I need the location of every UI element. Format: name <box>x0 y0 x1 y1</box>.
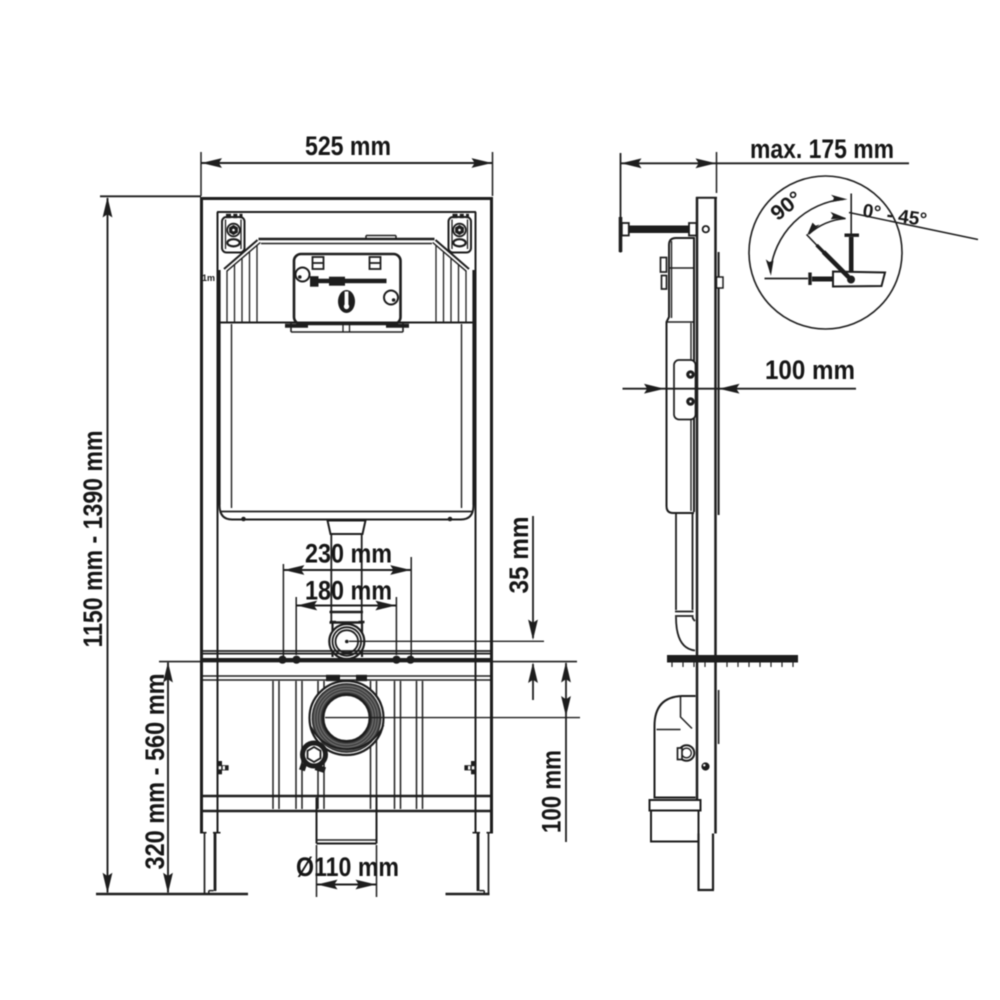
svg-text:180 mm: 180 mm <box>305 576 392 606</box>
svg-text:0°: 0° <box>861 201 882 224</box>
svg-text:1150 mm - 1390 mm: 1150 mm - 1390 mm <box>78 431 108 648</box>
svg-text:100 mm: 100 mm <box>537 750 567 833</box>
svg-text:230 mm: 230 mm <box>305 539 392 569</box>
svg-text:max. 175 mm: max. 175 mm <box>750 134 894 164</box>
svg-text:Ø110 mm: Ø110 mm <box>296 852 399 882</box>
svg-text:1m: 1m <box>202 273 215 283</box>
svg-text:320 mm - 560 mm: 320 mm - 560 mm <box>140 674 170 870</box>
svg-text:100 mm: 100 mm <box>765 355 855 385</box>
svg-text:35 mm: 35 mm <box>504 517 534 594</box>
svg-text:525 mm: 525 mm <box>305 131 391 161</box>
